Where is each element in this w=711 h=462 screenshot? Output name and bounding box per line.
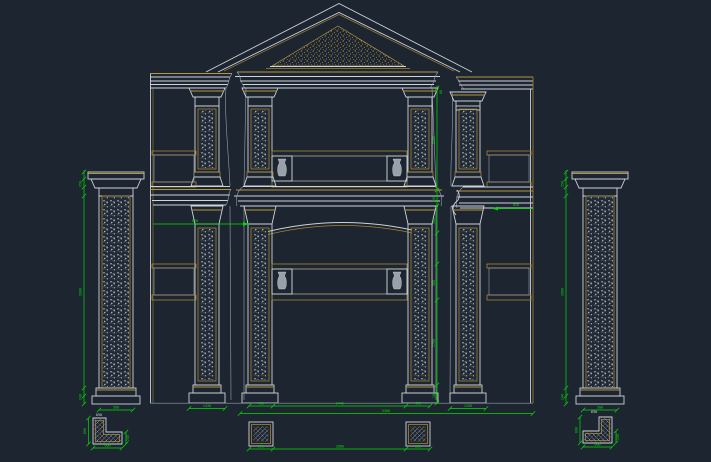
dim-label: 3280 (432, 136, 436, 144)
dim-label: 500 (415, 445, 421, 449)
detail-label: 650 (96, 413, 102, 417)
dim-label: 600 (83, 428, 87, 434)
dim-label: 240 (561, 394, 565, 400)
carved-pilaster-panel[interactable] (244, 106, 276, 186)
dim-label: 820 (513, 203, 519, 207)
cornice-central-bay (235, 72, 440, 88)
dim-label: 600 (594, 443, 600, 447)
carved-pilaster-panel[interactable] (404, 106, 436, 186)
pediment-ornament-triangle[interactable] (266, 26, 410, 69)
pilaster-capital[interactable] (189, 88, 225, 106)
balcony-balustrade-1f[interactable] (272, 264, 407, 300)
dim-label: 580 (432, 218, 436, 224)
dim-label: 2440 (336, 402, 344, 406)
dimensions[interactable]: 80 3280 200 580 360 1700 180 820 820 350… (79, 86, 621, 451)
dim-label: 500 (258, 445, 264, 449)
carved-column[interactable] (402, 206, 438, 403)
cornice-left-wall (150, 74, 232, 89)
dim-label: 500 (113, 406, 119, 410)
corner-section-detail-right[interactable] (583, 417, 612, 443)
right-column-elevation[interactable] (572, 172, 628, 404)
dim-label: 450 (258, 402, 264, 406)
dim-label: 820 (192, 219, 198, 223)
dim-label: 360 (432, 280, 436, 286)
dim-label: 240 (616, 434, 620, 440)
dim-label: 450 (415, 402, 421, 406)
dim-label: 500 (597, 406, 603, 410)
lattice-railing-right-wall-2f[interactable] (487, 151, 531, 187)
carved-column[interactable] (242, 206, 278, 403)
corner-section-detail-left[interactable] (93, 418, 122, 444)
second-floor[interactable] (152, 88, 531, 187)
drawing-viewport[interactable]: 80 3280 200 580 360 1700 180 820 820 350… (0, 0, 711, 462)
dim-label: 600 (575, 427, 579, 433)
dim-label: 200 (432, 196, 436, 202)
lattice-railing-left-wall-2f[interactable] (152, 151, 196, 187)
cad-canvas[interactable]: 80 3280 200 580 360 1700 180 820 820 350… (0, 0, 711, 462)
column-section-detail-left[interactable] (249, 422, 273, 446)
column-section-detail-right[interactable] (406, 422, 430, 446)
dim-label: 80 (439, 90, 443, 94)
lattice-railing-right-wall-1f[interactable] (487, 264, 531, 300)
roof-cornice[interactable] (150, 72, 533, 89)
dim-label: 180 (432, 392, 436, 398)
left-column-elevation[interactable] (88, 172, 144, 404)
arch[interactable] (262, 223, 425, 237)
dim-label: 2800 (561, 288, 565, 296)
balcony-balustrade-2f[interactable] (272, 151, 407, 187)
carved-pilaster-panel[interactable] (452, 106, 484, 186)
carved-pilaster-panel[interactable] (191, 106, 223, 186)
pilaster-capital[interactable] (450, 92, 486, 110)
dim-label: 1700 (432, 339, 436, 347)
first-floor[interactable] (150, 206, 533, 403)
dim-label: 2880 (336, 445, 344, 449)
detail-label: 650 (591, 410, 597, 414)
break-line-symbol (453, 190, 459, 215)
lattice-railing-left-wall-1f[interactable] (152, 264, 196, 300)
dim-label: 350 (561, 181, 565, 187)
dim-label: 5360 (382, 409, 390, 413)
belt-course[interactable] (150, 187, 533, 209)
carved-column[interactable] (189, 206, 225, 403)
dim-label: 350 (79, 181, 83, 187)
pilaster-capital[interactable] (242, 88, 278, 106)
pediment[interactable] (206, 4, 472, 73)
carved-column[interactable] (450, 206, 486, 403)
dim-label: 240 (126, 435, 130, 441)
dim-label: 1430 (203, 404, 211, 408)
cornice-right-wall (456, 77, 533, 89)
dim-label: 240 (79, 394, 83, 400)
dim-label: 2800 (79, 288, 83, 296)
dim-label: 600 (104, 444, 110, 448)
dim-label: 1430 (464, 404, 472, 408)
